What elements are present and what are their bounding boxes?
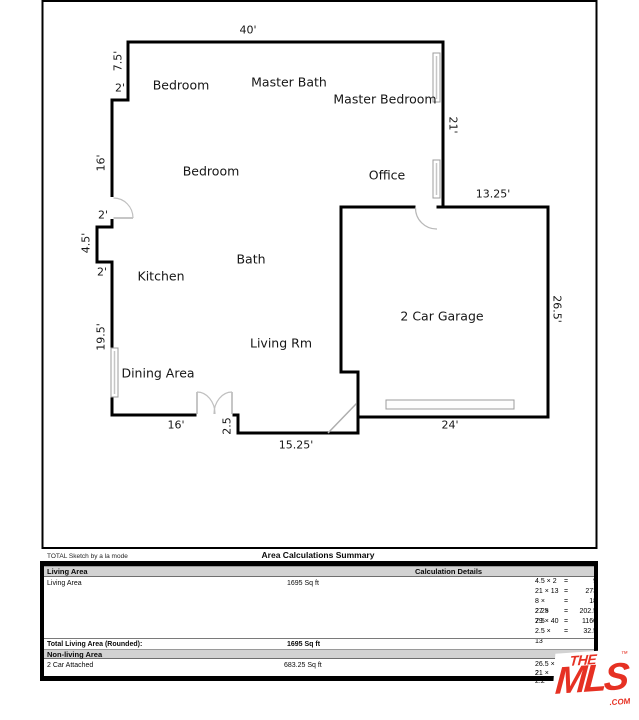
dim-label-top-40: 40' <box>239 24 256 37</box>
dim-label-right-21: 21' <box>447 116 460 133</box>
calc-line: 8 × 2.25=18 <box>535 597 597 607</box>
room-label-kitchen: Kitchen <box>138 269 185 284</box>
room-label-bath: Bath <box>236 252 265 267</box>
table-left-border <box>40 561 44 681</box>
dim-label-garage-13-25: 13.25' <box>476 188 511 201</box>
the-mls-logo: THE ™ MLS .COM <box>551 648 639 718</box>
dim-label-left-2-door: 2' <box>98 209 108 222</box>
calc-line: 4.5 × 2=9 <box>535 577 597 587</box>
nonliving-header-band <box>44 649 594 659</box>
door-gap-garage <box>416 205 437 211</box>
room-label-master-bath: Master Bath <box>251 75 327 90</box>
total-living-value: 1695 Sq ft <box>287 640 320 649</box>
dim-label-left-2-lower: 2' <box>97 266 107 279</box>
dim-label-left-2-upper: 2' <box>115 82 125 95</box>
table-bottom-bar <box>40 676 598 681</box>
nonliving-header: Non-living Area <box>47 650 102 659</box>
calc-line: 27 × 7.5=202.5 <box>535 607 597 617</box>
dim-label-bottom-15-25: 15.25' <box>279 439 314 452</box>
room-label-office: Office <box>369 168 406 183</box>
living-area-header: Living Area <box>47 567 88 576</box>
total-living-label: Total Living Area (Rounded): <box>47 640 142 649</box>
room-label-bedroom-mid: Bedroom <box>183 164 240 179</box>
living-area-row-label: Living Area <box>47 579 82 588</box>
dim-label-left-19-5: 19.5' <box>95 323 108 351</box>
dim-label-bottom-2-5: 2.5 <box>221 417 234 435</box>
dim-label-left-4-5: 4.5' <box>80 233 93 254</box>
door-gap-left <box>109 197 116 219</box>
room-label-living: Living Rm <box>250 336 312 351</box>
logo-mls-text: MLS <box>554 658 628 701</box>
dim-label-bottom-16: 16' <box>167 419 184 432</box>
calc-line: 21 × 13=273 <box>535 587 597 597</box>
living-area-header-band <box>44 566 594 577</box>
dim-label-left-7-5: 7.5' <box>112 51 125 72</box>
dim-label-garage-26-5: 26.5' <box>551 295 564 323</box>
garage-vehicle-door-icon <box>386 400 514 409</box>
living-calc-details: 4.5 × 2=9 21 × 13=273 8 × 2.25=18 27 × 7… <box>535 577 597 637</box>
living-area-row-value: 1695 Sq ft <box>287 579 319 588</box>
garage-row-value: 683.25 Sq ft <box>284 661 322 670</box>
calc-line: 2.5 × 13=32.5 <box>535 627 597 637</box>
floor-plan-page: Bedroom Master Bath Master Bedroom Bedro… <box>0 0 639 720</box>
room-label-dining: Dining Area <box>121 366 194 381</box>
dim-label-garage-24: 24' <box>441 419 458 432</box>
dim-label-left-16: 16' <box>95 154 108 171</box>
room-label-garage: 2 Car Garage <box>400 309 483 324</box>
calc-line: 29 × 40=1160 <box>535 617 597 627</box>
sketch-credit: TOTAL Sketch by a la mode <box>47 552 128 561</box>
calculation-details-header: Calculation Details <box>415 567 482 576</box>
garage-row-label: 2 Car Attached <box>47 661 93 670</box>
logo-com-text: .COM <box>609 697 630 708</box>
table-title: Area Calculations Summary <box>262 551 375 560</box>
table-divider-line <box>44 638 594 639</box>
room-label-bedroom-top: Bedroom <box>153 78 210 93</box>
room-label-master-bedroom: Master Bedroom <box>333 92 436 107</box>
